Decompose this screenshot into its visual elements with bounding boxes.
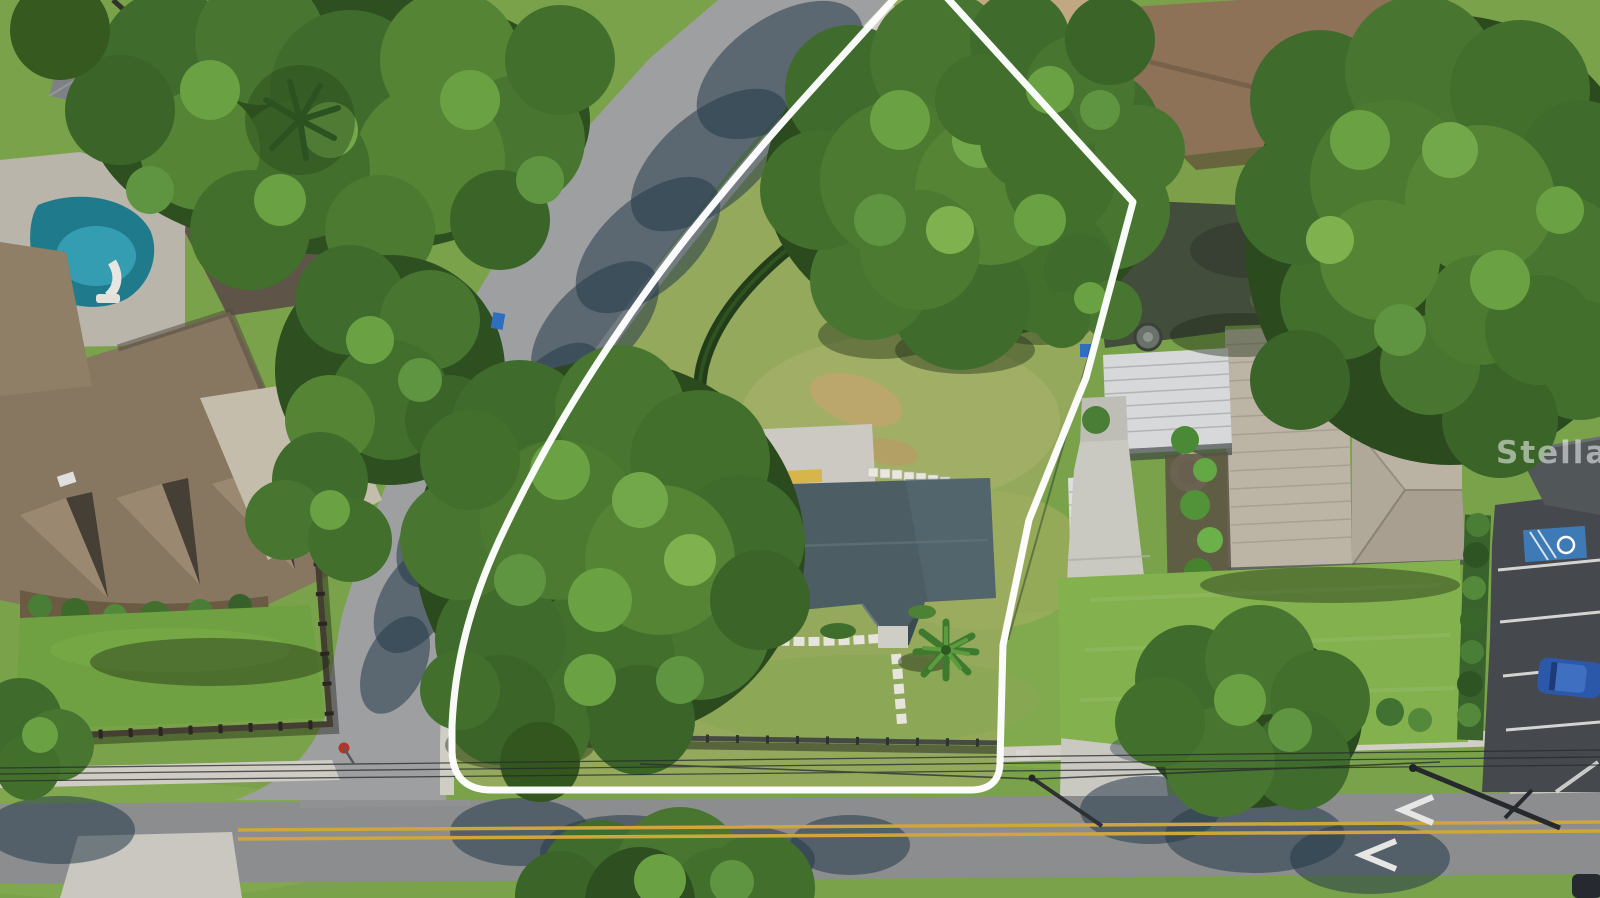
aerial-photo: Stellar MLS [0,0,1600,898]
watermark: Stellar MLS [1496,435,1600,471]
aerial-photo-canvas: Stellar MLS [0,0,1600,898]
accessible-parking-space [1523,526,1587,562]
parking-lot [1482,492,1600,792]
mailbox [1016,750,1030,760]
dark-vehicle [1572,874,1600,898]
front-porch-pad [878,626,908,648]
blue-car [1536,657,1600,699]
tree-canopy-right-strip [1235,0,1600,478]
